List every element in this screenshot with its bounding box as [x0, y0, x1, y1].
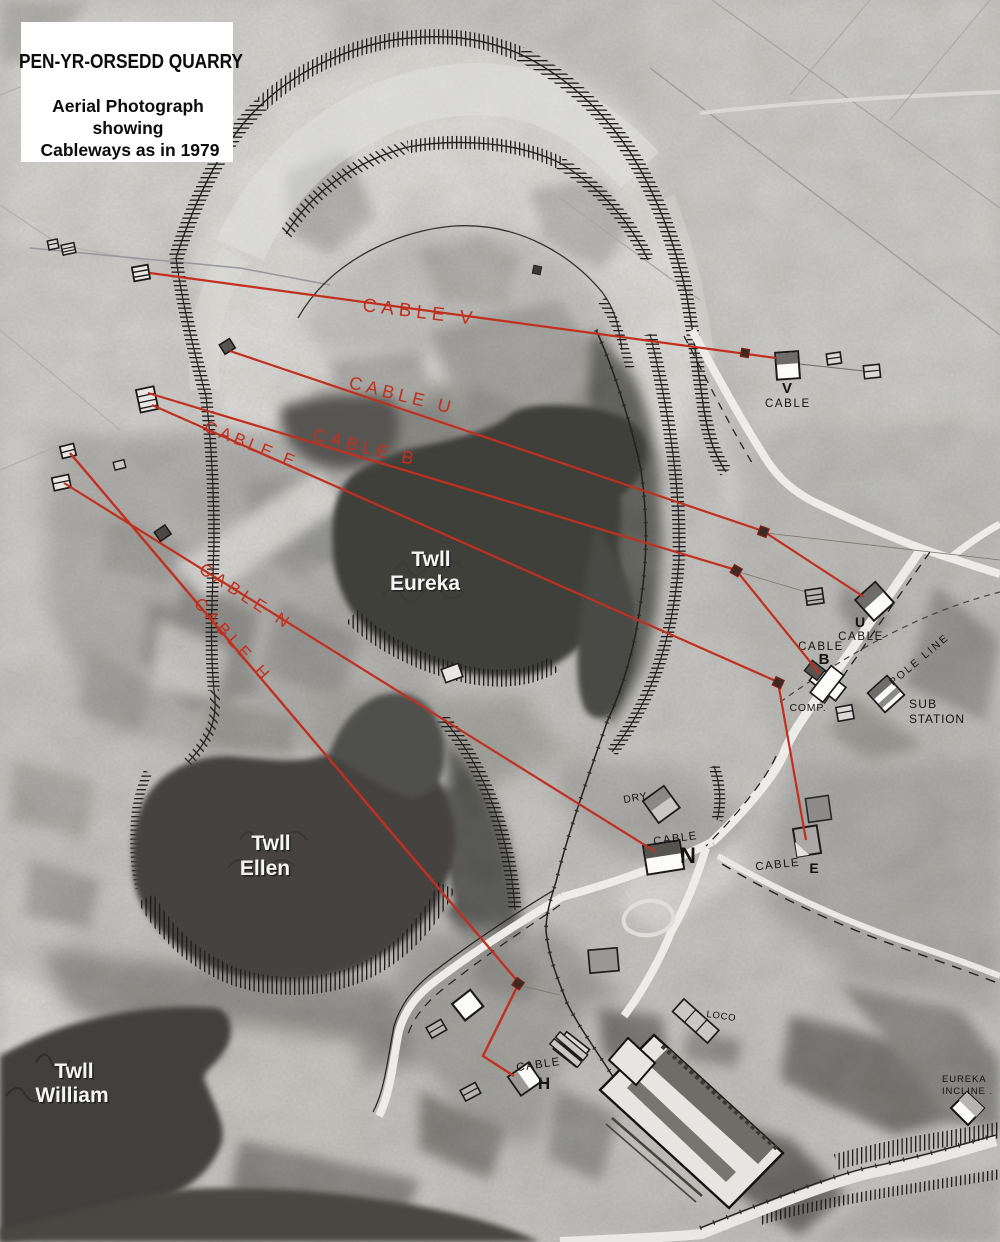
svg-text:PEN-YR-ORSEDD QUARRY: PEN-YR-ORSEDD QUARRY	[19, 50, 243, 73]
svg-text:SUB: SUB	[909, 697, 937, 711]
svg-text:U: U	[855, 614, 865, 630]
svg-text:EUREKA: EUREKA	[942, 1074, 986, 1085]
svg-text:Twll: Twll	[251, 832, 290, 855]
svg-text:INCLINE .: INCLINE .	[942, 1086, 993, 1097]
svg-text:COMP.: COMP.	[789, 702, 826, 714]
svg-text:E: E	[809, 860, 818, 876]
svg-text:William: William	[35, 1084, 108, 1107]
svg-text:V: V	[782, 380, 792, 397]
svg-text:Twll: Twll	[411, 548, 450, 571]
svg-text:Eureka: Eureka	[390, 572, 460, 595]
svg-text:CABLE: CABLE	[765, 398, 811, 410]
svg-text:N: N	[680, 843, 696, 868]
svg-text:CABLE: CABLE	[838, 631, 884, 643]
svg-text:STATION: STATION	[909, 712, 965, 726]
svg-text:B: B	[819, 651, 830, 668]
svg-text:Twll: Twll	[54, 1060, 93, 1083]
svg-text:Cableways as in 1979: Cableways as in 1979	[41, 140, 220, 160]
svg-text:Ellen: Ellen	[240, 857, 290, 880]
svg-text:H: H	[538, 1074, 550, 1093]
svg-text:showing: showing	[93, 118, 164, 138]
svg-text:Aerial Photograph: Aerial Photograph	[52, 96, 204, 116]
